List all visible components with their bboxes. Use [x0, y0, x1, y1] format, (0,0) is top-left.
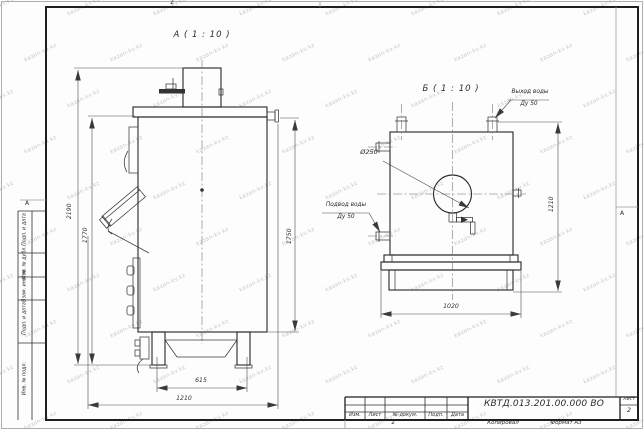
frame-column-label-inv-podl: Инв. № подл.: [22, 349, 27, 409]
hole-diameter-callout: Ø250: [352, 149, 386, 156]
frame-column-label-podp-data-2: Подп. и дата: [22, 289, 27, 349]
title-block-col-podp: Подп.: [425, 413, 447, 418]
dim-a-base-width: 615: [181, 378, 221, 385]
dim-b-height: 1210: [549, 184, 556, 224]
zone-marker-top: 2: [167, 0, 177, 6]
title-block-col-izm: Изм.: [345, 413, 365, 418]
title-block-doc-number: КВТД.013.201.00.000 ВО: [470, 400, 618, 409]
view-a-geometry: [99, 60, 279, 373]
dim-a-overall-height: 2190: [67, 191, 74, 231]
footer-format-label: Формат А3: [536, 421, 596, 427]
dim-a-overall-width: 1210: [164, 396, 204, 403]
zone-marker-left: А: [22, 201, 32, 207]
water-outlet-callout-line2: Ду 50: [509, 101, 549, 107]
water-inlet-callout-line1: Подвод воды: [322, 202, 370, 208]
dim-a-right-height: 1750: [287, 216, 294, 256]
zone-marker-bottom: 2: [388, 420, 398, 426]
title-block-sheet-label: Лист: [620, 398, 638, 403]
zone-marker-right: А: [617, 211, 627, 217]
dim-b-width: 1020: [431, 304, 471, 311]
title-block-col-data: Дата: [447, 413, 468, 418]
title-block-col-list: Лист: [365, 413, 385, 418]
view-a-label: А ( 1 : 10 ): [162, 31, 242, 40]
water-inlet-callout-line2: Ду 50: [322, 214, 370, 220]
view-b-label: Б ( 1 : 10 ): [411, 85, 491, 94]
title-block-sheet-number: 2: [620, 407, 638, 414]
view-b-geometry: [368, 102, 526, 300]
water-outlet-callout-line1: Выход воды: [506, 89, 554, 95]
title-block-col-dokum: № докум.: [385, 413, 425, 418]
dim-a-left-height: 1770: [83, 215, 90, 255]
footer-copied-by-label: Копировал: [473, 421, 533, 427]
dimension-lines: [74, 68, 562, 409]
drawing-sheet: kazan-kv.kzkazan-kv.kzkazan-kv.kzkazan-k…: [0, 0, 644, 430]
